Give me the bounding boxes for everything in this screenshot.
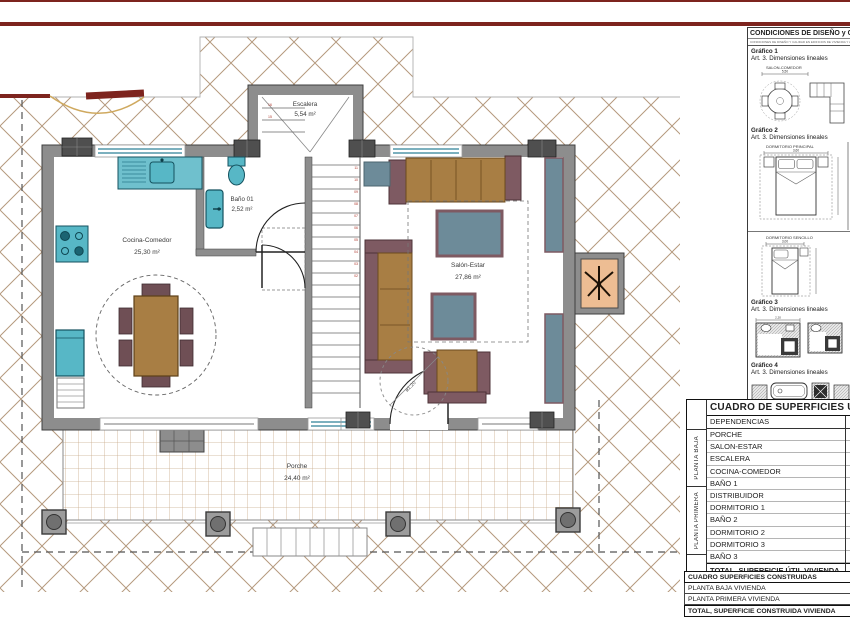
side-table (364, 162, 390, 186)
floor-plan-drawing: 11 10 09 08 07 06 05 04 03 02 16 15 (0, 0, 690, 620)
toilet (228, 157, 245, 185)
table-row: DISTRIBUIDOR (707, 490, 850, 502)
sofa-top (389, 156, 521, 204)
table-row: BAÑO 3 (707, 551, 850, 563)
coffee-table (437, 211, 502, 256)
porch-pilaster (160, 430, 204, 452)
table-row: BAÑO 2 (707, 514, 850, 526)
grafico1-dim: 5,50 (782, 70, 788, 74)
svg-text:15: 15 (268, 115, 272, 119)
kitchen-window (95, 145, 185, 157)
grafico1-drawing: SALON-COMEDOR 5,50 (750, 63, 850, 125)
built-table-title: CUADRO SUPERFICIES CONSTRUIDAS (684, 571, 850, 583)
grafico2-caption: Art. 3. Dimensiones lineales (748, 134, 850, 142)
svg-text:08: 08 (354, 202, 358, 206)
bottom-window-left (100, 418, 258, 430)
conditions-panel: CONDICIONES DE DISEÑO y CA CONDICIONES D… (747, 27, 850, 420)
planta-baja-group: PLANTA BAJA (687, 430, 706, 487)
grafico3-label: Gráfico 3 (748, 297, 850, 306)
blueprint-canvas: 11 10 09 08 07 06 05 04 03 02 16 15 (0, 0, 850, 620)
bano01-label: Baño 01 (230, 196, 254, 203)
escalera-area: 5,54 m² (294, 111, 315, 118)
porche-label: Porche (287, 463, 308, 470)
dormitorio-principal-dim: 3,60 (793, 149, 799, 153)
table-row: PLANTA PRIMERA VIVIENDA (684, 594, 850, 605)
useful-surfaces-table: PLANTA BAJA PLANTA PRIMERA CUADRO DE SUP… (686, 399, 850, 579)
grafico3-dim: 2,20 (775, 316, 781, 320)
porch-steps (253, 528, 367, 556)
svg-text:09: 09 (354, 190, 358, 194)
built-surfaces-table: CUADRO SUPERFICIES CONSTRUIDAS PLANTA BA… (684, 571, 850, 620)
bano01-area: 2,52 m² (232, 206, 253, 213)
table-row: DORMITORIO 1 (707, 502, 850, 514)
table-row: COCINA-COMEDOR (707, 466, 850, 478)
svg-text:06: 06 (354, 226, 358, 230)
armchair (424, 350, 490, 403)
svg-text:07: 07 (354, 214, 358, 218)
svg-text:03: 03 (354, 262, 358, 266)
floor-group-column: PLANTA BAJA PLANTA PRIMERA (687, 400, 707, 578)
table-row: PLANTA BAJA VIVIENDA (684, 583, 850, 594)
salon-label: Salón-Estar (451, 262, 486, 269)
top-border-line (0, 0, 850, 2)
grafico2-sencillo-drawing: DORMITORIO SENCILLO 3,00 (750, 233, 850, 297)
dormitorio-principal-name: DORMITORIO PRINCIPAL (766, 144, 815, 149)
grafico4-caption: Art. 3. Dimensiones lineales (748, 369, 850, 377)
grafico2-label: Gráfico 2 (748, 125, 850, 134)
window-bench-top (545, 158, 563, 252)
svg-text:05: 05 (354, 238, 358, 242)
grafico1-caption: Art. 3. Dimensiones lineales (748, 55, 850, 63)
planta-primera-group: PLANTA PRIMERA (687, 487, 706, 555)
panel-title: CONDICIONES DE DISEÑO y CA (748, 28, 850, 39)
table-row: DORMITORIO 2 (707, 527, 850, 539)
ottoman (432, 294, 475, 339)
table-header-dependencias: DEPENDENCIAS (707, 416, 850, 429)
grafico3-caption: Art. 3. Dimensiones lineales (748, 306, 850, 314)
grafico1-label: Gráfico 1 (748, 46, 850, 55)
svg-text:10: 10 (354, 178, 358, 182)
shelf-unit (57, 378, 84, 408)
grafico4-label: Gráfico 4 (748, 360, 850, 369)
grafico2-principal-drawing: DORMITORIO PRINCIPAL 3,60 (750, 142, 850, 230)
sofa-left (365, 240, 412, 373)
svg-text:16: 16 (268, 103, 272, 107)
panel-subtitle: CONDICIONES DE DISEÑO Y CALIDAD EN EDIFI… (748, 39, 850, 46)
fridge (56, 330, 84, 376)
salon-window (390, 145, 462, 157)
grafico3-drawing: 2,20 (750, 314, 850, 360)
useful-table-title: CUADRO DE SUPERFICIES UTI (707, 400, 850, 416)
table-row: DORMITORIO 3 (707, 539, 850, 551)
dependencias-column: CUADRO DE SUPERFICIES UTI DEPENDENCIAS P… (707, 400, 850, 578)
table-row: SALON-ESTAR (707, 441, 850, 453)
table-row: ESCALERA (707, 453, 850, 465)
bottom-window-right (478, 418, 538, 430)
dormitorio-sencillo-name: DORMITORIO SENCILLO (766, 235, 813, 240)
salon-area: 27,86 m² (455, 274, 481, 281)
shower-cabinet (206, 190, 223, 228)
planta-primera-label: PLANTA PRIMERA (694, 492, 700, 549)
panel-divider (748, 231, 850, 232)
svg-text:02: 02 (354, 274, 358, 278)
porche-area: 24,40 m² (284, 475, 310, 482)
title-rule-line (0, 22, 850, 26)
planta-baja-label: PLANTA BAJA (694, 436, 700, 480)
cocina-area: 25,30 m² (134, 249, 160, 256)
dormitorio-sencillo-dim: 3,00 (782, 240, 788, 244)
values-column-divider (845, 416, 846, 578)
fireplace (581, 259, 618, 308)
svg-text:11: 11 (354, 166, 358, 170)
sink-counter (118, 157, 202, 189)
stove (56, 226, 88, 262)
cocina-label: Cocina-Comedor (122, 237, 172, 244)
table-row: BAÑO 1 (707, 478, 850, 490)
window-bench-bottom (545, 314, 563, 403)
svg-text:04: 04 (354, 250, 358, 254)
table-row: PORCHE (707, 429, 850, 441)
built-total-row: TOTAL, SUPERFICIE CONSTRUIDA VIVIENDA (684, 605, 850, 617)
escalera-label: Escalera (293, 101, 318, 108)
